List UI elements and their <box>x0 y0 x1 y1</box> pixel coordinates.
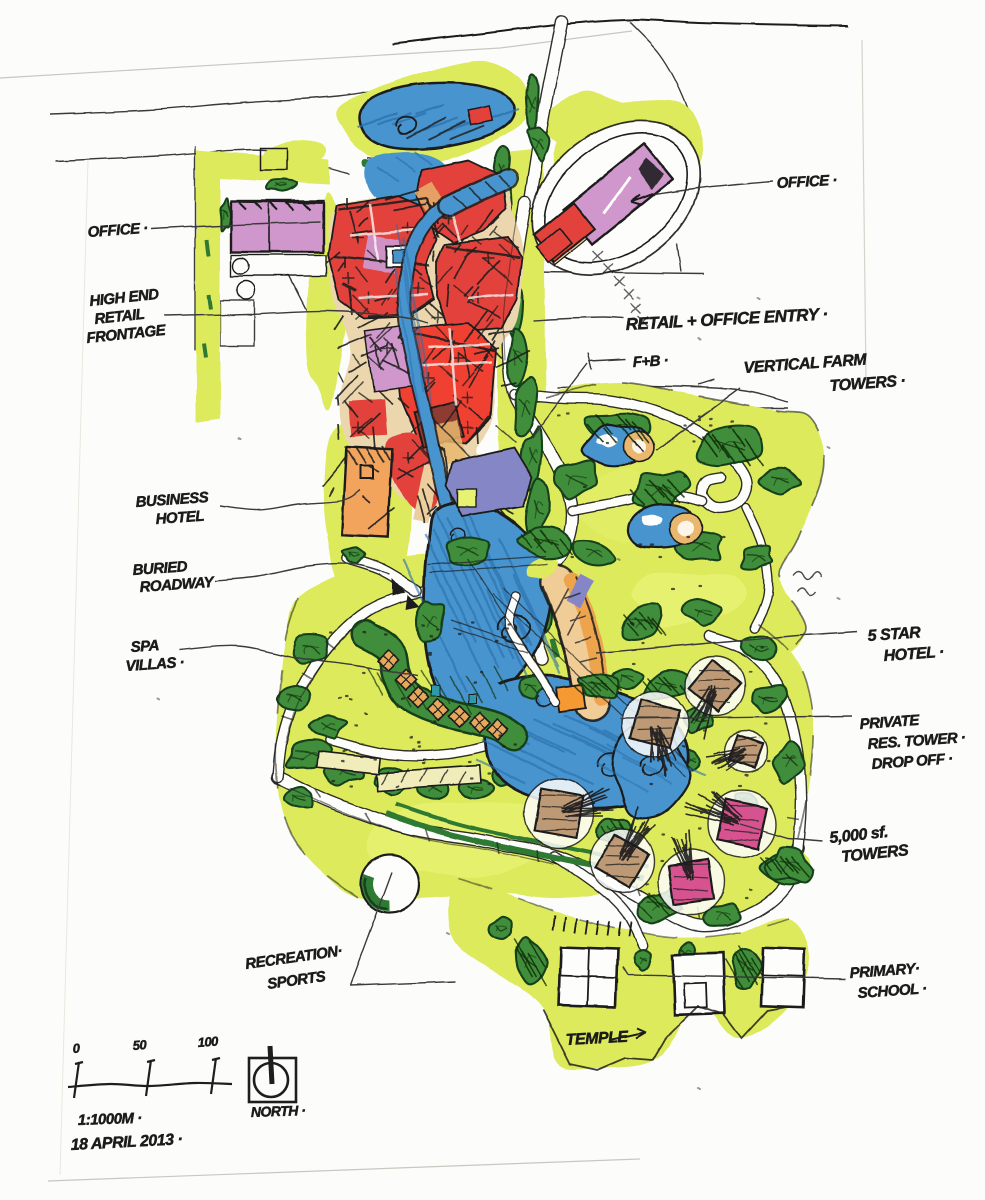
svg-text:TOWERS ·: TOWERS · <box>829 373 906 395</box>
svg-text:SCHOOL ·: SCHOOL · <box>857 980 927 1002</box>
svg-text:100: 100 <box>197 1034 219 1050</box>
svg-text:RES. TOWER ·: RES. TOWER · <box>867 729 966 753</box>
svg-text:0: 0 <box>72 1040 81 1056</box>
svg-text:OFFICE ·: OFFICE · <box>87 220 148 241</box>
svg-text:PRIVATE: PRIVATE <box>859 712 921 733</box>
svg-text:SPORTS: SPORTS <box>266 968 327 993</box>
svg-text:NORTH ·: NORTH · <box>251 1102 306 1120</box>
svg-text:VERTICAL FARM: VERTICAL FARM <box>743 351 868 377</box>
svg-text:TEMPLE: TEMPLE <box>565 1029 630 1049</box>
svg-text:OFFICE ·: OFFICE · <box>776 172 837 192</box>
svg-text:PRIMARY·: PRIMARY· <box>849 960 920 982</box>
svg-text:18 APRIL 2013 ·: 18 APRIL 2013 · <box>70 1131 183 1154</box>
svg-text:VILLAS ·: VILLAS · <box>125 654 185 675</box>
svg-text:F+B ·: F+B · <box>632 352 668 371</box>
svg-text:5 STAR: 5 STAR <box>867 624 922 645</box>
svg-text:DROP OFF ·: DROP OFF · <box>871 750 953 773</box>
svg-text:SPA: SPA <box>130 637 159 656</box>
svg-text:50: 50 <box>132 1037 148 1053</box>
svg-text:RECREATION·: RECREATION· <box>244 943 343 973</box>
svg-text:HOTEL ·: HOTEL · <box>883 644 944 665</box>
svg-text:RETAIL + OFFICE ENTRY ·: RETAIL + OFFICE ENTRY · <box>625 304 828 334</box>
svg-text:1:1000M ·: 1:1000M · <box>78 1110 142 1129</box>
svg-text:HOTEL: HOTEL <box>155 508 205 528</box>
svg-text:HIGH END: HIGH END <box>89 286 160 310</box>
svg-text:TOWERS: TOWERS <box>841 842 910 866</box>
svg-text:5,000 sf.: 5,000 sf. <box>829 824 889 847</box>
